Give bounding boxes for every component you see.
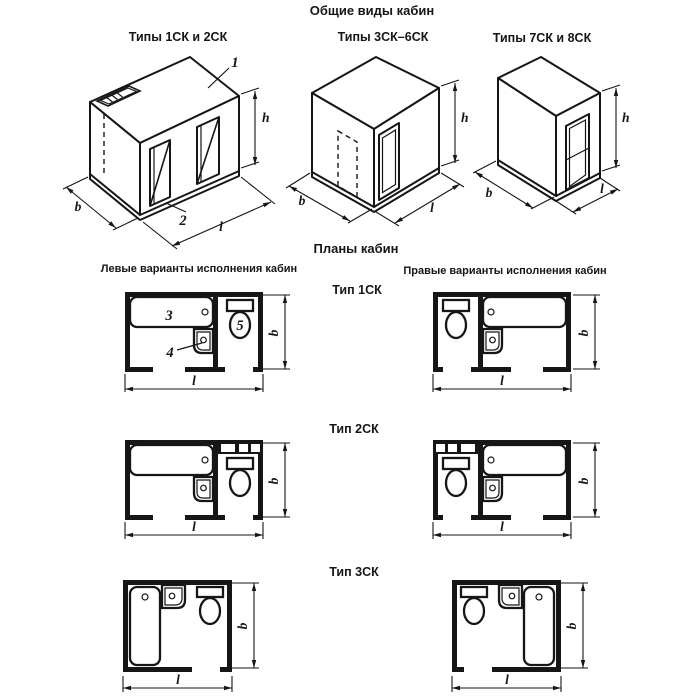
dim-arrowhead: [433, 533, 441, 537]
dim-label-l: l: [600, 181, 604, 196]
plan-3sk-right-content: [452, 580, 561, 672]
heading-general-views: Общие виды кабин: [310, 3, 435, 18]
dim-arrowhead: [614, 88, 618, 96]
bathtub: [483, 445, 566, 475]
bottom-wall-seg2: [471, 367, 511, 372]
bottom-wall-seg2: [185, 515, 225, 520]
door-opening-2: [197, 117, 219, 184]
dim-arrowhead: [593, 295, 597, 303]
bottom-wall-seg1: [125, 515, 153, 520]
vent-block: [218, 440, 263, 454]
view1-title: Типы 1СК и 2СК: [129, 30, 227, 44]
dim-label-l: l: [192, 519, 196, 534]
left-wall: [123, 580, 128, 672]
washbasin: [499, 585, 522, 608]
dim-arrowhead: [581, 660, 585, 668]
dim-label-b: b: [576, 477, 591, 484]
left-wall: [556, 580, 561, 672]
dim-arrowhead: [453, 83, 457, 91]
dim-arrowhead: [593, 443, 597, 451]
dim-arrowhead: [253, 91, 257, 99]
bottom-wall-seg1: [492, 667, 561, 672]
callout-toilet: 5: [236, 318, 243, 334]
technical-drawing: h b l 1 2: [0, 0, 700, 700]
plan-3sk-left-content: [123, 580, 232, 672]
iso-view-1sk-2sk: h b l 1 2: [63, 55, 275, 249]
door-opening: [566, 114, 589, 190]
toilet: [227, 458, 253, 496]
callout-bath: 3: [164, 308, 172, 324]
bottom-wall-seg1: [543, 367, 571, 372]
dim-arrowhead: [123, 686, 131, 690]
dim-label-l: l: [500, 519, 504, 534]
bathtub: [130, 445, 213, 475]
dim-label-l: l: [430, 200, 434, 215]
dim-arrowhead: [452, 184, 460, 190]
dim-arrowhead: [395, 217, 403, 223]
bottom-wall-seg1: [123, 667, 192, 672]
dim-label-b: b: [486, 185, 493, 200]
bottom-wall-seg2: [220, 667, 232, 672]
dim-arrowhead: [125, 387, 133, 391]
dim-arrowhead: [252, 583, 256, 591]
dim-label-l: l: [219, 219, 223, 234]
bottom-wall-seg3: [433, 515, 443, 520]
heading-plans: Планы кабин: [313, 241, 398, 256]
washbasin: [483, 477, 502, 501]
dim-label-b: b: [564, 622, 579, 629]
dim-arrowhead: [573, 206, 581, 212]
right-wall: [258, 292, 263, 372]
dim-arrowhead: [172, 241, 180, 246]
iso-view-7sk-8sk: h b l: [473, 57, 630, 214]
vent-block: [433, 440, 478, 454]
plan-type1-title: Тип 1СК: [332, 283, 381, 297]
plan-2sk-right-content: [433, 440, 571, 520]
bottom-wall-seg2: [471, 515, 511, 520]
dim-label-b: b: [235, 622, 250, 629]
plan-1sk-right-content: [433, 292, 571, 372]
dim-arrowhead: [581, 583, 585, 591]
plan-type2-title: Тип 2СК: [329, 422, 378, 436]
dim-arrowhead: [563, 387, 571, 391]
heading-right-variants: Правые варианты исполнения кабин: [403, 265, 606, 277]
plan-2sk-left-content: [125, 440, 263, 520]
dim-label-h: h: [622, 110, 630, 125]
dim-label-h: h: [461, 110, 469, 125]
right-wall: [433, 292, 438, 372]
dim-arrowhead: [283, 295, 287, 303]
washbasin: [194, 329, 213, 353]
bathtub: [483, 297, 566, 327]
drawing-canvas: h b l 1 2: [0, 0, 700, 700]
dim-arrowhead: [252, 660, 256, 668]
bottom-wall-seg2: [185, 367, 225, 372]
dim-label-h: h: [262, 110, 270, 125]
dim-h-view1: h: [241, 88, 270, 168]
dim-label-l: l: [192, 373, 196, 388]
bathtub: [130, 587, 160, 665]
washbasin: [483, 329, 502, 353]
bottom-wall-seg1: [543, 515, 571, 520]
door-opening-1: [150, 140, 170, 206]
dim-label-b: b: [299, 193, 306, 208]
door-opening: [379, 123, 399, 200]
dim-label-b: b: [266, 329, 281, 336]
dim-arrowhead: [263, 202, 271, 207]
toilet: [443, 300, 469, 338]
dim-arrowhead: [224, 686, 232, 690]
dim-arrowhead: [593, 361, 597, 369]
dim-arrowhead: [125, 533, 133, 537]
bottom-wall-seg2: [452, 667, 464, 672]
bottom-wall-seg3: [433, 367, 443, 372]
dim-arrowhead: [563, 533, 571, 537]
dim-arrowhead: [452, 686, 460, 690]
bottom-wall-seg3: [253, 367, 263, 372]
dim-label-b: b: [266, 477, 281, 484]
dim-arrowhead: [525, 202, 533, 208]
dim-arrowhead: [433, 387, 441, 391]
dim-h-view3: h: [602, 85, 630, 171]
view3-title: Типы 7СК и 8СК: [493, 31, 591, 45]
callout-roof: 1: [231, 55, 238, 71]
toilet: [461, 587, 487, 624]
dim-arrowhead: [475, 172, 483, 178]
callout-base: 2: [178, 213, 186, 229]
dim-arrowhead: [283, 443, 287, 451]
bathtub: [524, 587, 554, 665]
dim-h-view2: h: [441, 80, 469, 166]
toilet: [197, 587, 223, 624]
dim-label-l: l: [176, 672, 180, 687]
right-wall: [452, 580, 457, 672]
washbasin: [194, 477, 213, 501]
right-wall: [227, 580, 232, 672]
dim-arrowhead: [289, 186, 297, 192]
callout-washbasin: 4: [165, 345, 173, 361]
dim-label-b: b: [576, 329, 591, 336]
dim-arrowhead: [342, 215, 350, 221]
plan-type3-title: Тип 3СК: [329, 565, 378, 579]
dim-arrowhead: [610, 189, 618, 195]
bottom-wall-seg3: [253, 515, 263, 520]
dim-arrowhead: [255, 387, 263, 391]
dim-arrowhead: [255, 533, 263, 537]
heading-left-variants: Левые варианты исполнения кабин: [101, 263, 297, 275]
toilet: [443, 458, 469, 496]
dim-label-b: b: [75, 199, 82, 214]
washbasin: [162, 585, 185, 608]
dim-arrowhead: [283, 509, 287, 517]
view2-title: Типы 3СК–6СК: [338, 30, 429, 44]
dim-arrowhead: [553, 686, 561, 690]
bottom-wall-seg1: [125, 367, 153, 372]
dim-arrowhead: [283, 361, 287, 369]
dim-label-l: l: [500, 373, 504, 388]
iso-view-3sk-6sk: h b l: [286, 57, 469, 226]
dim-label-l: l: [505, 672, 509, 687]
dim-arrowhead: [593, 509, 597, 517]
